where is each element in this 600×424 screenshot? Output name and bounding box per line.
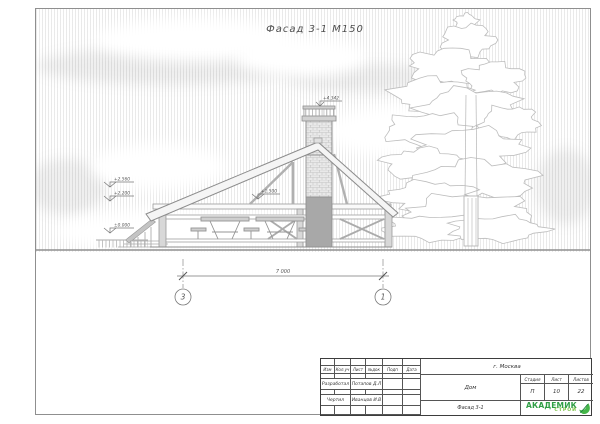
role-developer: Разработал <box>321 379 351 390</box>
rev-header-koluch: Кол.уч <box>335 366 351 374</box>
name-draftsman: Иванцов И.В <box>351 395 383 406</box>
axis-label-right: 1 <box>381 293 386 302</box>
sheets-total: 22 <box>569 384 593 400</box>
axis-label-left: 3 <box>181 293 186 302</box>
logo-leaf-icon <box>578 402 591 415</box>
mark-ground: ±0.000 <box>114 223 130 229</box>
title-block: Изм Кол.уч Лист №док Подп Дата Разработа… <box>320 358 592 416</box>
stage-table: Стадия Лист Листов П 10 22 <box>521 375 593 401</box>
sheets-header: Листов <box>569 375 593 384</box>
city-cell: г. Москва <box>421 359 593 375</box>
mark-left-upper: +2.560 <box>114 177 130 183</box>
mark-center: +1.500 <box>261 189 277 195</box>
rev-header-podp: Подп <box>383 366 403 374</box>
role-draftsman: Чертил <box>321 395 351 406</box>
logo-text-stroy: СТРОЙ <box>554 409 577 414</box>
mark-left-lower: +2.200 <box>114 191 130 197</box>
pavilion <box>96 106 398 248</box>
picnic-tables <box>191 217 313 239</box>
rev-header-izm: Изм <box>321 366 335 374</box>
stage-header: Стадия <box>521 375 545 384</box>
company-logo: АКАДЕМИК СТРОЙ <box>521 401 593 415</box>
name-developer: Потапов Д.Л <box>351 379 383 390</box>
revision-table: Изм Кол.уч Лист №док Подп Дата Разработа… <box>321 359 421 415</box>
drawing-title: Фасад 3-1 М150 <box>250 24 380 35</box>
sheet-name: Фасад 3-1 <box>421 401 520 415</box>
rev-header-dok: №док <box>366 366 383 374</box>
sheet-number: 10 <box>545 384 569 400</box>
chimney <box>302 106 336 247</box>
dimension-line: 7 000 3 1 <box>175 259 391 305</box>
mark-chimney-top: +4.342 <box>323 96 339 102</box>
project-name: Дом <box>421 375 520 401</box>
dimension-value: 7 000 <box>276 269 290 275</box>
stage-value: П <box>521 384 545 400</box>
rev-header-data: Дата <box>403 366 421 374</box>
drawing-sheet: +4.342 +2.560 +2.200 ±0.000 +1.500 7 000… <box>0 0 600 424</box>
rev-header-list: Лист <box>351 366 366 374</box>
sheet-header: Лист <box>545 375 569 384</box>
